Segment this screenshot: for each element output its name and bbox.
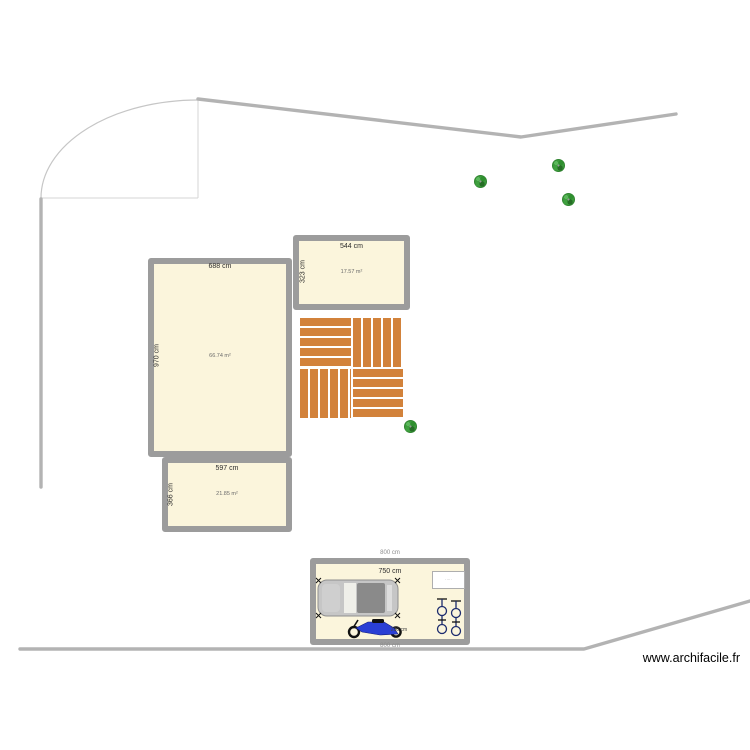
room-top-right-area-label: 17.57 m² <box>293 270 410 276</box>
bicycle[interactable] <box>437 599 447 634</box>
motorcycle-dimension-label: 230 cm <box>384 627 414 633</box>
garage-outer-width-top-label: 800 cm <box>310 550 470 556</box>
storage-box-label: ····· <box>445 578 452 582</box>
deck-quadrant-bottom-right <box>353 369 404 418</box>
tree[interactable] <box>404 420 417 433</box>
deck-quadrant-top-right <box>353 318 404 367</box>
wood-deck[interactable] <box>300 318 403 418</box>
deck-quadrant-bottom-left <box>300 369 351 418</box>
tree[interactable] <box>552 159 565 172</box>
storage-box[interactable]: ····· <box>432 571 465 589</box>
watermark: www.archifacile.fr <box>643 651 740 665</box>
fence-top <box>198 99 676 137</box>
bicycle[interactable] <box>451 601 461 636</box>
room-main-area-label: 66.74 m² <box>148 354 292 360</box>
deck-quadrant-top-left <box>300 318 351 367</box>
tree[interactable] <box>562 193 575 206</box>
room-main-width-label: 688 cm <box>148 263 292 270</box>
room-bottom-area-label: 21.85 m² <box>162 492 292 498</box>
floor-plan-canvas: 688 cm 970 cm 66.74 m² 544 cm 323 cm 17.… <box>0 0 750 750</box>
room-bottom-width-label: 597 cm <box>162 465 292 472</box>
gate-swing-arc <box>41 100 198 198</box>
car[interactable] <box>316 578 400 618</box>
room-top-right-width-label: 544 cm <box>293 243 410 250</box>
tree[interactable] <box>474 175 487 188</box>
